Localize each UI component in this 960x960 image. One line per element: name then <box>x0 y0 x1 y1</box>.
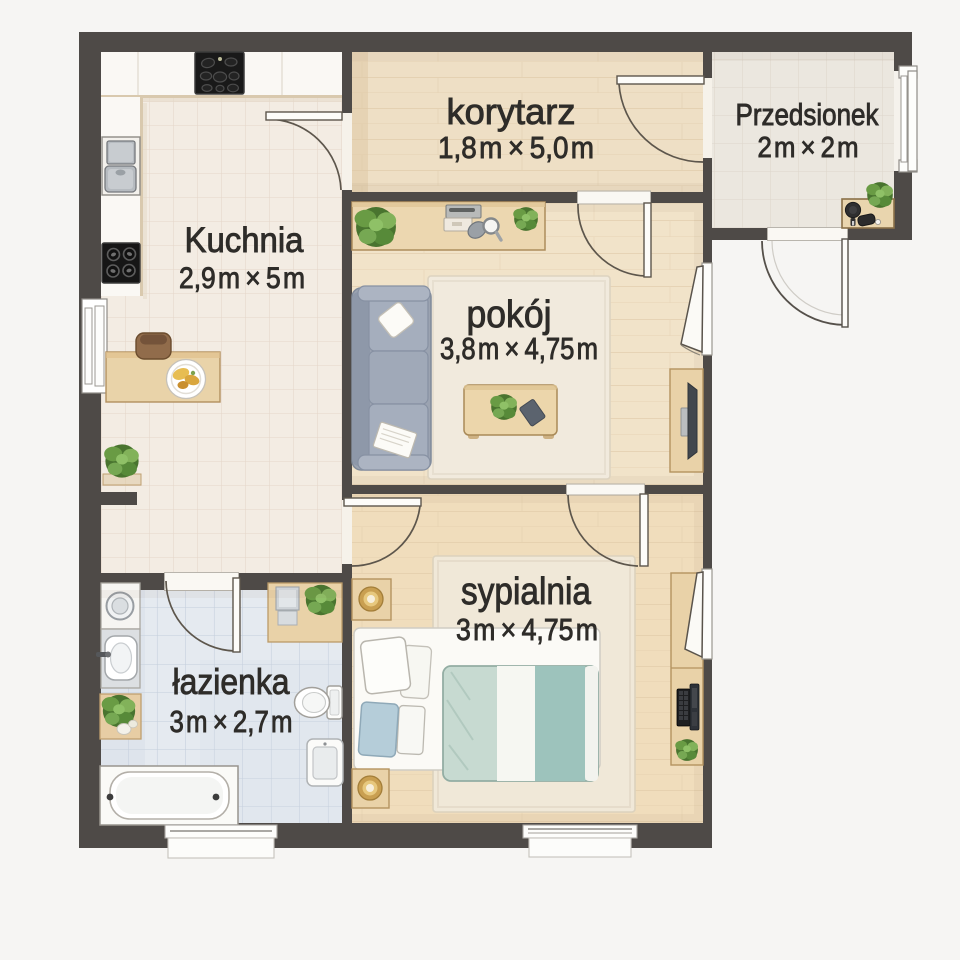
svg-text:2,9 m × 5 m: 2,9 m × 5 m <box>179 262 305 295</box>
svg-text:Kuchnia: Kuchnia <box>185 221 305 260</box>
svg-text:3 m × 2,7 m: 3 m × 2,7 m <box>170 704 293 739</box>
svg-text:Przedsionek: Przedsionek <box>736 97 879 132</box>
svg-text:3,8 m × 4,75 m: 3,8 m × 4,75 m <box>440 331 598 366</box>
svg-text:1,8 m × 5,0 m: 1,8 m × 5,0 m <box>438 130 594 165</box>
svg-text:pokój: pokój <box>467 294 552 336</box>
svg-text:łazienka: łazienka <box>173 661 291 702</box>
svg-text:sypialnia: sypialnia <box>461 571 592 613</box>
svg-text:2 m × 2 m: 2 m × 2 m <box>758 132 859 164</box>
svg-text:korytarz: korytarz <box>447 91 576 132</box>
svg-text:3 m × 4,75 m: 3 m × 4,75 m <box>456 612 598 647</box>
